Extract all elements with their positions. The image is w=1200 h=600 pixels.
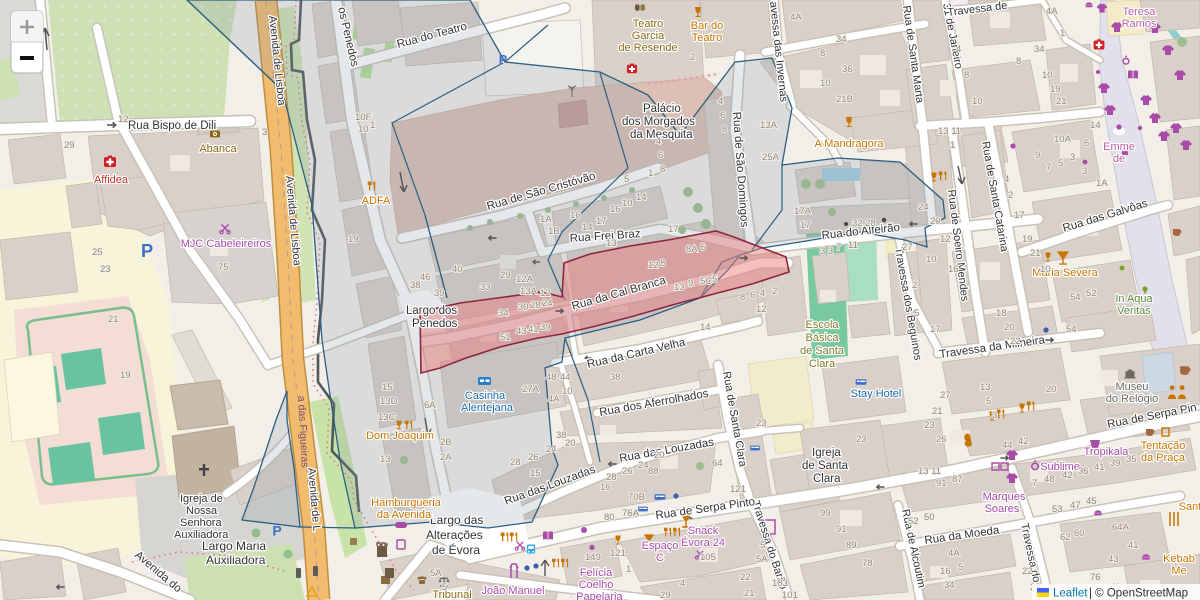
svg-text:15: 15 bbox=[382, 382, 393, 393]
svg-text:27: 27 bbox=[940, 390, 951, 401]
svg-text:4: 4 bbox=[1004, 174, 1009, 185]
svg-text:13: 13 bbox=[606, 238, 617, 249]
svg-text:13C: 13C bbox=[378, 412, 396, 423]
svg-text:47: 47 bbox=[1070, 500, 1081, 511]
svg-text:19: 19 bbox=[1022, 234, 1033, 245]
svg-text:Soares: Soares bbox=[985, 503, 1020, 515]
svg-text:Auxiliadora: Auxiliadora bbox=[206, 553, 266, 567]
svg-text:26: 26 bbox=[528, 452, 539, 463]
svg-text:Tentação: Tentação bbox=[1141, 440, 1186, 452]
svg-text:34: 34 bbox=[836, 34, 847, 45]
svg-text:Garcia: Garcia bbox=[632, 30, 665, 42]
svg-text:13 11: 13 11 bbox=[938, 126, 961, 137]
svg-text:45: 45 bbox=[1086, 496, 1097, 507]
svg-text:5C: 5C bbox=[700, 276, 712, 287]
svg-text:2: 2 bbox=[912, 280, 917, 291]
svg-text:6: 6 bbox=[750, 290, 755, 301]
svg-text:Largo dos: Largo dos bbox=[406, 305, 457, 317]
svg-text:Marques: Marques bbox=[983, 491, 1026, 503]
svg-text:de: de bbox=[1113, 153, 1125, 165]
svg-text:7: 7 bbox=[1032, 478, 1037, 489]
svg-text:10: 10 bbox=[622, 198, 633, 209]
svg-text:24: 24 bbox=[918, 202, 929, 213]
svg-text:21: 21 bbox=[744, 588, 755, 599]
svg-text:10: 10 bbox=[1042, 70, 1053, 81]
svg-text:Clara: Clara bbox=[809, 358, 836, 370]
svg-text:15: 15 bbox=[530, 468, 541, 479]
svg-text:21: 21 bbox=[932, 406, 943, 417]
svg-text:91: 91 bbox=[936, 478, 947, 489]
svg-text:6: 6 bbox=[700, 242, 705, 253]
svg-text:12: 12 bbox=[648, 260, 659, 271]
svg-text:28: 28 bbox=[530, 300, 541, 311]
svg-text:Tribunal: Tribunal bbox=[432, 589, 471, 600]
svg-text:Largo das: Largo das bbox=[430, 513, 483, 527]
svg-text:44: 44 bbox=[1002, 440, 1013, 451]
svg-text:64A: 64A bbox=[1112, 522, 1130, 533]
svg-text:10A: 10A bbox=[1054, 134, 1072, 145]
svg-text:2B: 2B bbox=[440, 437, 452, 448]
svg-text:4A: 4A bbox=[1046, 6, 1058, 17]
svg-text:5: 5 bbox=[986, 396, 991, 407]
svg-text:Snack: Snack bbox=[688, 525, 719, 537]
svg-text:Casinha: Casinha bbox=[465, 390, 506, 402]
svg-text:28: 28 bbox=[510, 457, 521, 468]
svg-text:101: 101 bbox=[782, 590, 798, 600]
svg-text:27A: 27A bbox=[522, 384, 540, 395]
svg-text:13: 13 bbox=[980, 382, 991, 393]
svg-text:5: 5 bbox=[958, 562, 963, 573]
svg-text:8: 8 bbox=[660, 164, 665, 175]
svg-text:34: 34 bbox=[944, 580, 955, 591]
svg-text:26: 26 bbox=[936, 434, 947, 445]
svg-text:Alterações: Alterações bbox=[426, 528, 483, 542]
svg-text:5: 5 bbox=[1058, 158, 1063, 169]
svg-text:Espaço: Espaço bbox=[642, 540, 679, 552]
svg-text:Leaflet: Leaflet bbox=[1053, 588, 1088, 600]
svg-text:14: 14 bbox=[700, 322, 711, 333]
svg-text:3: 3 bbox=[1070, 152, 1075, 163]
svg-text:13 11: 13 11 bbox=[918, 466, 941, 477]
svg-text:23: 23 bbox=[856, 434, 867, 445]
svg-text:52: 52 bbox=[908, 516, 919, 527]
svg-text:7: 7 bbox=[836, 242, 841, 253]
svg-text:24: 24 bbox=[546, 444, 557, 455]
svg-text:10: 10 bbox=[820, 78, 831, 89]
svg-text:25A: 25A bbox=[762, 152, 780, 163]
svg-text:121: 121 bbox=[610, 548, 626, 559]
svg-text:13: 13 bbox=[380, 454, 391, 465]
svg-text:21B: 21B bbox=[836, 94, 853, 105]
svg-text:8: 8 bbox=[964, 70, 969, 81]
svg-text:da Avenida: da Avenida bbox=[377, 509, 432, 521]
svg-text:4: 4 bbox=[760, 288, 765, 299]
svg-text:16: 16 bbox=[570, 210, 581, 221]
svg-text:121: 121 bbox=[730, 484, 746, 495]
svg-text:Teresa: Teresa bbox=[1122, 6, 1156, 18]
svg-text:3 3: 3 3 bbox=[820, 246, 833, 257]
svg-text:Teatro: Teatro bbox=[633, 18, 664, 30]
svg-text:13A: 13A bbox=[760, 120, 778, 131]
svg-text:13: 13 bbox=[674, 282, 685, 293]
svg-text:22: 22 bbox=[740, 572, 751, 583]
svg-text:Largo Maria: Largo Maria bbox=[202, 539, 266, 553]
svg-text:17: 17 bbox=[596, 216, 607, 227]
svg-text:6A: 6A bbox=[424, 400, 436, 411]
svg-text:17: 17 bbox=[668, 224, 679, 235]
svg-text:14: 14 bbox=[636, 192, 647, 203]
svg-text:54: 54 bbox=[1066, 324, 1077, 335]
svg-text:Dom Joaquim: Dom Joaquim bbox=[366, 430, 434, 442]
svg-text:51: 51 bbox=[500, 332, 511, 343]
svg-text:4: 4 bbox=[718, 96, 723, 107]
svg-text:Évora 24: Évora 24 bbox=[681, 536, 725, 549]
svg-text:46: 46 bbox=[420, 272, 431, 283]
svg-text:5: 5 bbox=[760, 540, 765, 551]
svg-text:40: 40 bbox=[452, 264, 463, 275]
svg-text:de Santa: de Santa bbox=[800, 345, 845, 357]
svg-text:de Santa: de Santa bbox=[802, 460, 849, 472]
svg-text:| © OpenStreetMap: | © OpenStreetMap bbox=[1089, 588, 1188, 600]
svg-text:20: 20 bbox=[1046, 384, 1057, 395]
svg-text:38: 38 bbox=[610, 372, 621, 383]
svg-text:9: 9 bbox=[688, 278, 693, 289]
svg-text:1: 1 bbox=[950, 140, 955, 151]
svg-text:7: 7 bbox=[1046, 162, 1051, 173]
svg-text:1: 1 bbox=[626, 564, 631, 575]
svg-text:39: 39 bbox=[1110, 458, 1121, 469]
svg-text:5: 5 bbox=[712, 274, 717, 285]
svg-text:5A: 5A bbox=[756, 554, 768, 565]
svg-text:5: 5 bbox=[624, 174, 629, 185]
svg-text:30: 30 bbox=[518, 302, 529, 313]
svg-text:41: 41 bbox=[1094, 462, 1105, 473]
svg-text:João Manuel: João Manuel bbox=[482, 585, 545, 597]
svg-text:Palácio: Palácio bbox=[643, 103, 681, 115]
svg-text:da Praça: da Praça bbox=[1141, 452, 1186, 464]
svg-text:Rua Bispo de Dili: Rua Bispo de Dili bbox=[128, 120, 216, 132]
svg-text:17A: 17A bbox=[794, 206, 812, 217]
svg-text:17: 17 bbox=[930, 324, 941, 335]
svg-text:1B: 1B bbox=[548, 226, 560, 237]
svg-text:Veritas: Veritas bbox=[1117, 305, 1151, 317]
svg-text:Teatro: Teatro bbox=[692, 32, 723, 44]
svg-text:8: 8 bbox=[660, 258, 665, 269]
svg-text:26: 26 bbox=[622, 466, 633, 477]
svg-text:Escola: Escola bbox=[805, 319, 839, 331]
svg-text:42: 42 bbox=[1018, 436, 1029, 447]
svg-text:19: 19 bbox=[120, 370, 131, 381]
svg-text:88: 88 bbox=[648, 466, 659, 477]
svg-text:36: 36 bbox=[842, 64, 853, 75]
svg-text:22: 22 bbox=[1022, 566, 1033, 577]
svg-text:18: 18 bbox=[996, 308, 1007, 319]
svg-text:A Mandragora: A Mandragora bbox=[814, 138, 884, 150]
svg-text:16: 16 bbox=[600, 482, 611, 493]
svg-text:64: 64 bbox=[712, 458, 723, 469]
svg-text:8: 8 bbox=[1016, 56, 1021, 67]
svg-text:34: 34 bbox=[498, 308, 509, 319]
svg-text:29: 29 bbox=[64, 140, 75, 151]
svg-text:4A: 4A bbox=[948, 548, 960, 559]
svg-text:28: 28 bbox=[606, 472, 617, 483]
svg-text:Básica: Básica bbox=[805, 332, 839, 344]
svg-text:42: 42 bbox=[1062, 470, 1073, 481]
svg-text:Penedos: Penedos bbox=[412, 318, 458, 330]
svg-text:Igreja de: Igreja de bbox=[180, 493, 223, 505]
svg-text:60: 60 bbox=[1074, 528, 1085, 539]
svg-text:Affidea: Affidea bbox=[94, 174, 129, 186]
svg-text:12: 12 bbox=[118, 114, 129, 125]
svg-text:10: 10 bbox=[926, 254, 937, 265]
svg-text:4: 4 bbox=[656, 136, 661, 147]
svg-text:Nossa: Nossa bbox=[186, 505, 218, 517]
svg-text:62: 62 bbox=[1060, 532, 1071, 543]
svg-text:Stay Hotel: Stay Hotel bbox=[851, 388, 902, 400]
svg-text:4: 4 bbox=[956, 44, 961, 55]
svg-text:de Évora: de Évora bbox=[432, 542, 480, 557]
svg-text:53: 53 bbox=[1052, 504, 1063, 515]
svg-text:16: 16 bbox=[940, 566, 951, 577]
svg-text:54: 54 bbox=[1070, 292, 1081, 303]
svg-text:Bar do: Bar do bbox=[691, 20, 723, 32]
svg-text:Igreja: Igreja bbox=[812, 447, 841, 459]
svg-text:75: 75 bbox=[218, 262, 229, 273]
svg-text:5: 5 bbox=[442, 582, 447, 593]
svg-text:8A: 8A bbox=[686, 244, 698, 255]
svg-text:149: 149 bbox=[585, 552, 601, 563]
svg-text:dos Morgados: dos Morgados bbox=[622, 116, 695, 128]
svg-text:48: 48 bbox=[546, 372, 557, 383]
svg-text:6: 6 bbox=[720, 110, 725, 121]
svg-text:Senhora: Senhora bbox=[180, 517, 222, 529]
svg-text:da Mesquita: da Mesquita bbox=[630, 129, 693, 141]
svg-text:19: 19 bbox=[348, 234, 359, 245]
svg-text:103: 103 bbox=[772, 578, 788, 589]
svg-text:5: 5 bbox=[914, 308, 919, 319]
svg-text:3: 3 bbox=[1082, 166, 1087, 177]
svg-text:4A: 4A bbox=[548, 394, 560, 405]
svg-text:52: 52 bbox=[1086, 288, 1097, 299]
svg-text:44: 44 bbox=[560, 372, 571, 383]
svg-text:23: 23 bbox=[756, 418, 767, 429]
svg-text:10F: 10F bbox=[355, 112, 372, 123]
svg-text:17: 17 bbox=[800, 220, 811, 231]
svg-text:41: 41 bbox=[1128, 540, 1139, 551]
svg-text:39: 39 bbox=[434, 288, 445, 299]
svg-text:Ramos: Ramos bbox=[1122, 18, 1157, 30]
svg-text:99: 99 bbox=[820, 508, 831, 519]
svg-text:12A: 12A bbox=[516, 274, 534, 285]
svg-text:25: 25 bbox=[92, 247, 103, 258]
svg-text:Sant: Sant bbox=[1179, 501, 1200, 513]
svg-text:76A: 76A bbox=[622, 508, 640, 519]
svg-text:3: 3 bbox=[992, 410, 997, 421]
svg-text:Kebab: Kebab bbox=[1163, 553, 1195, 565]
svg-text:10: 10 bbox=[562, 386, 573, 397]
svg-text:14: 14 bbox=[582, 222, 593, 233]
svg-text:10: 10 bbox=[358, 124, 369, 135]
svg-text:14: 14 bbox=[1090, 120, 1101, 131]
svg-text:Me: Me bbox=[1171, 565, 1186, 577]
svg-text:78: 78 bbox=[862, 558, 873, 569]
svg-text:In Aqua: In Aqua bbox=[1115, 293, 1153, 305]
svg-text:Felícia: Felícia bbox=[580, 567, 613, 579]
svg-text:MJC Cabeleireiros: MJC Cabeleireiros bbox=[181, 238, 272, 250]
svg-text:20: 20 bbox=[1004, 322, 1015, 333]
svg-text:105: 105 bbox=[700, 552, 716, 563]
svg-text:32 28: 32 28 bbox=[852, 218, 876, 229]
svg-text:8: 8 bbox=[722, 124, 727, 135]
svg-text:16: 16 bbox=[610, 204, 621, 215]
svg-text:13D: 13D bbox=[380, 396, 398, 407]
svg-text:4A: 4A bbox=[790, 12, 802, 23]
svg-text:23: 23 bbox=[924, 420, 935, 431]
svg-text:20: 20 bbox=[654, 450, 665, 461]
svg-text:11: 11 bbox=[848, 240, 858, 251]
svg-text:1: 1 bbox=[1060, 28, 1065, 39]
svg-text:Emme: Emme bbox=[1103, 141, 1135, 153]
svg-text:41: 41 bbox=[528, 324, 539, 335]
svg-text:19: 19 bbox=[1050, 84, 1061, 95]
svg-text:6: 6 bbox=[658, 150, 663, 161]
svg-text:de Resende: de Resende bbox=[618, 42, 677, 54]
svg-text:12: 12 bbox=[940, 234, 951, 245]
svg-text:Abanca: Abanca bbox=[199, 143, 237, 155]
svg-text:5A: 5A bbox=[430, 568, 442, 579]
svg-text:22: 22 bbox=[1010, 336, 1021, 347]
svg-text:C: C bbox=[656, 552, 664, 564]
svg-text:48: 48 bbox=[1044, 474, 1055, 485]
svg-text:· Papelaria: · Papelaria bbox=[569, 591, 623, 600]
svg-text:1A: 1A bbox=[1096, 178, 1108, 189]
svg-text:29: 29 bbox=[500, 270, 511, 281]
svg-text:43: 43 bbox=[516, 326, 527, 337]
svg-text:23: 23 bbox=[100, 264, 111, 275]
svg-text:2A: 2A bbox=[440, 452, 452, 463]
svg-text:9: 9 bbox=[1035, 150, 1040, 161]
svg-text:21: 21 bbox=[1056, 96, 1067, 107]
svg-text:34: 34 bbox=[1034, 44, 1045, 55]
svg-text:2: 2 bbox=[1008, 190, 1013, 201]
svg-text:4: 4 bbox=[680, 578, 685, 589]
svg-text:16: 16 bbox=[948, 264, 959, 275]
svg-text:10: 10 bbox=[972, 96, 983, 107]
svg-text:38: 38 bbox=[410, 280, 421, 291]
svg-text:80: 80 bbox=[604, 512, 615, 523]
svg-text:76: 76 bbox=[1090, 572, 1101, 583]
svg-text:87: 87 bbox=[952, 474, 963, 485]
svg-text:70B: 70B bbox=[628, 492, 645, 503]
svg-text:Tropikala: Tropikala bbox=[1084, 446, 1130, 458]
svg-text:20: 20 bbox=[930, 216, 941, 227]
svg-text:Auxiliadora: Auxiliadora bbox=[174, 529, 229, 541]
svg-text:3: 3 bbox=[262, 127, 267, 138]
svg-text:6: 6 bbox=[1084, 138, 1089, 149]
svg-text:12: 12 bbox=[756, 304, 767, 315]
svg-text:24: 24 bbox=[542, 298, 553, 309]
svg-text:50: 50 bbox=[924, 512, 935, 523]
svg-text:Coelho: Coelho bbox=[579, 579, 614, 591]
svg-text:8: 8 bbox=[740, 292, 745, 303]
svg-text:Hamburgueria: Hamburgueria bbox=[371, 497, 442, 509]
svg-text:1A: 1A bbox=[540, 214, 552, 225]
svg-text:24: 24 bbox=[638, 460, 649, 471]
svg-text:33: 33 bbox=[480, 282, 491, 293]
svg-text:20: 20 bbox=[565, 438, 576, 449]
svg-text:35: 35 bbox=[1126, 454, 1137, 465]
svg-text:Clara: Clara bbox=[813, 473, 841, 485]
svg-text:39: 39 bbox=[540, 322, 551, 333]
svg-text:21: 21 bbox=[1030, 248, 1041, 259]
svg-text:13A: 13A bbox=[520, 286, 538, 297]
svg-text:91: 91 bbox=[836, 524, 847, 535]
svg-text:36: 36 bbox=[1078, 466, 1089, 477]
svg-text:Museu: Museu bbox=[1115, 381, 1148, 393]
svg-text:Alentejana: Alentejana bbox=[461, 402, 514, 414]
svg-text:43: 43 bbox=[1108, 554, 1119, 565]
svg-text:27: 27 bbox=[902, 242, 913, 253]
svg-text:1: 1 bbox=[648, 168, 653, 179]
svg-text:89: 89 bbox=[846, 540, 857, 551]
svg-text:21: 21 bbox=[108, 314, 119, 325]
svg-text:Sublime: Sublime bbox=[1040, 461, 1080, 473]
svg-text:8: 8 bbox=[820, 48, 825, 59]
svg-text:do Relógio: do Relógio bbox=[1106, 393, 1159, 405]
svg-text:2: 2 bbox=[772, 286, 777, 297]
svg-text:2: 2 bbox=[690, 52, 695, 63]
svg-text:29: 29 bbox=[660, 590, 671, 600]
svg-text:17: 17 bbox=[1014, 210, 1025, 221]
svg-text:ADFA: ADFA bbox=[362, 195, 391, 207]
svg-text:10: 10 bbox=[1040, 264, 1051, 275]
